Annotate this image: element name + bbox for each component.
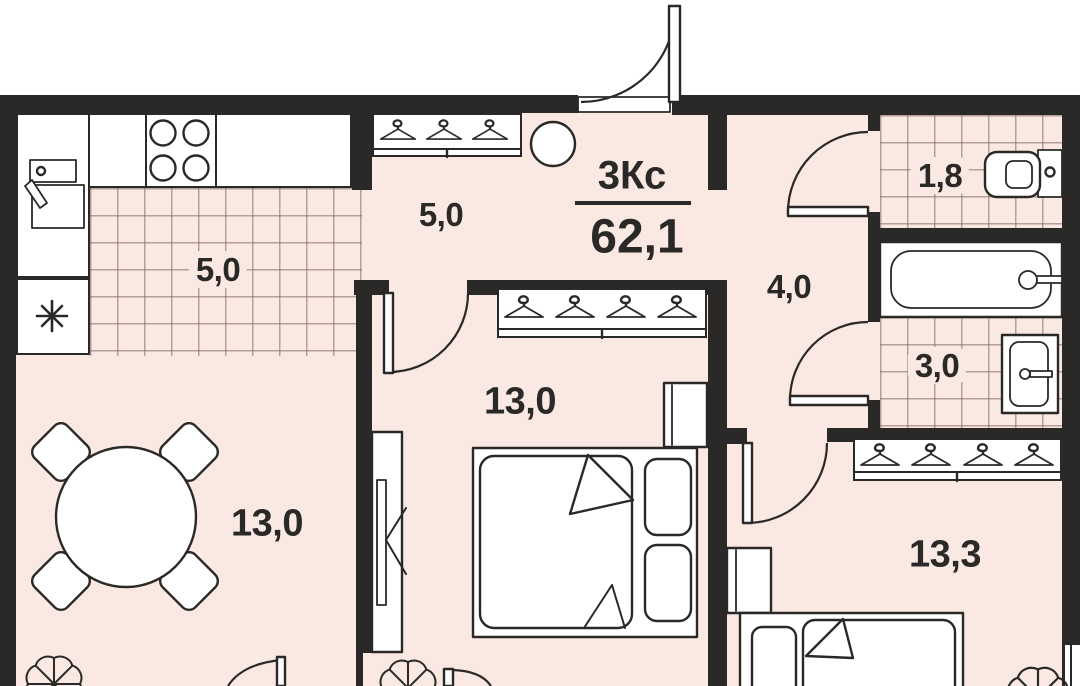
- bedroom-wardrobe: [497, 288, 707, 330]
- floor-plan: 3Кс 62,1 5,0 5,0 4,0 1,8 3,0 13,0 13,0 1…: [0, 0, 1080, 686]
- wc-tile-floor: [880, 115, 1062, 228]
- stove-box: [145, 113, 217, 188]
- room-label-bedroom2: 13,3: [909, 534, 981, 577]
- wall: [722, 428, 747, 444]
- wall: [868, 400, 880, 428]
- bedroom2-wardrobe: [853, 438, 1062, 473]
- entrance-door: [578, 6, 680, 112]
- wall: [356, 653, 363, 686]
- room-label-hall: 4,0: [767, 268, 811, 306]
- wall: [1062, 95, 1080, 645]
- plan-total-area: 62,1: [590, 210, 683, 265]
- wall: [0, 95, 16, 686]
- room-label-living: 13,0: [231, 503, 303, 546]
- wall: [868, 212, 880, 322]
- wall: [0, 95, 578, 113]
- room-label-kitchen: 5,0: [189, 251, 247, 289]
- bedroom-wardrobe-shelf: [497, 328, 707, 338]
- wall: [868, 113, 880, 131]
- wall: [708, 113, 727, 190]
- bedroom2-wardrobe-shelf: [853, 471, 1062, 481]
- wall: [708, 293, 727, 686]
- room-label-bedroom: 13,0: [484, 381, 556, 424]
- coat-rack-shelf: [372, 148, 522, 157]
- wall: [352, 113, 372, 190]
- kitchen-counter-side: [16, 113, 90, 278]
- window-glass-line: [1070, 645, 1072, 686]
- plan-title: 3Кс: [598, 154, 666, 199]
- appliance-box: [16, 278, 90, 355]
- room-label-wc: 1,8: [911, 157, 969, 195]
- room-label-hall-top: 5,0: [419, 196, 463, 234]
- room-label-bathroom: 3,0: [908, 347, 966, 385]
- wall: [356, 280, 372, 653]
- title-divider: [575, 201, 691, 205]
- wall: [672, 95, 1080, 115]
- coat-rack: [372, 113, 522, 150]
- wall: [880, 228, 1062, 242]
